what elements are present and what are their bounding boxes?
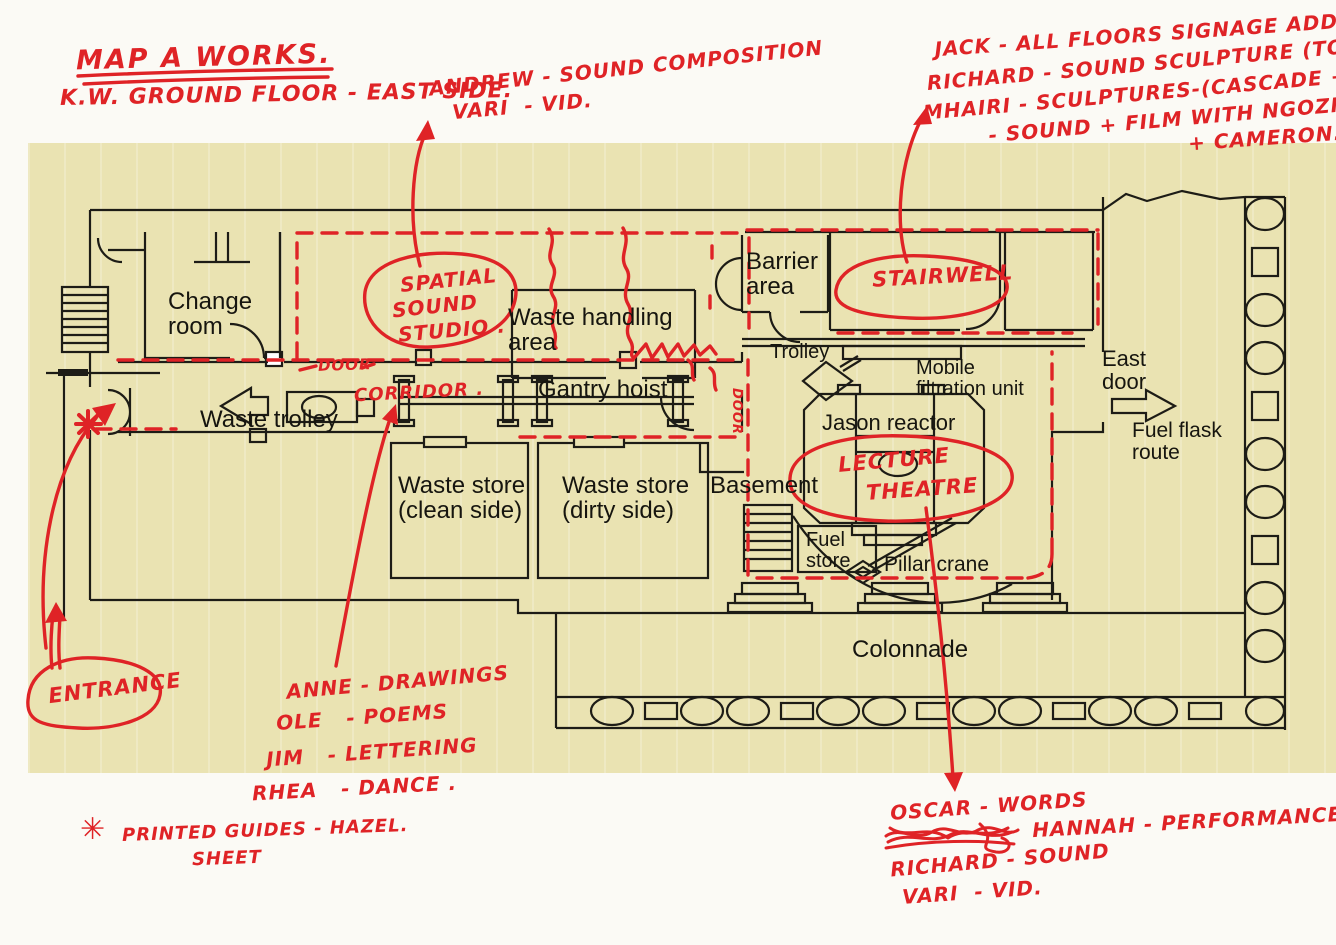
east-door-arrow	[1112, 390, 1175, 421]
note-sheet: SHEET	[192, 847, 263, 870]
room-label-waste-trolley: Waste trolley	[200, 408, 338, 433]
room-label-mobile-filtration: Mobile filtration unit	[916, 358, 1024, 400]
room-label-fuel-flask-route: Fuel flask route	[1132, 420, 1222, 464]
room-label-waste-store-clean: Waste store (clean side)	[398, 474, 525, 524]
ne-room-walls	[1005, 232, 1093, 330]
colonnade-columns-south	[591, 697, 1284, 725]
scanned-annotated-floor-plan: Change room Waste handling area Barrier …	[0, 0, 1336, 945]
east-wall	[1052, 197, 1103, 600]
label-door: DOOR	[318, 355, 372, 375]
room-label-change-room: Change room	[168, 290, 252, 340]
change-room-partition	[194, 232, 250, 262]
small-squiggles	[688, 360, 716, 390]
room-label-fuel-store: Fuel store	[806, 530, 850, 572]
room-label-waste-store-dirty: Waste store (dirty side)	[562, 474, 689, 524]
label-door-vertical: DOOR	[729, 388, 744, 435]
asterisk-footnote-icon: ✳	[80, 812, 106, 847]
room-label-east-door: East door	[1102, 348, 1146, 394]
door-post-2	[416, 350, 431, 365]
store-door-post	[424, 437, 466, 447]
colonnade-columns-east	[1246, 198, 1284, 662]
room-label-basement: Basement	[710, 474, 818, 499]
colonnade-band	[556, 697, 1285, 728]
jack-arrow	[900, 106, 932, 262]
asterisk-mark	[76, 411, 101, 437]
room-label-waste-handling: Waste handling area	[508, 306, 673, 356]
basement-wall	[700, 443, 744, 472]
basement-stairs-hatch	[744, 514, 792, 559]
jagged-edge	[1103, 191, 1245, 210]
wall-hatch-block	[58, 369, 88, 376]
room-label-jason-reactor: Jason reactor	[822, 412, 955, 435]
anne-arrow	[336, 404, 398, 666]
stairs-hatch	[62, 295, 108, 343]
barrier-double-door	[716, 258, 742, 310]
room-label-colonnade: Colonnade	[852, 638, 968, 663]
room-label-gantry-hoist: Gantry hoist	[538, 378, 667, 403]
andrew-arrow	[413, 120, 435, 266]
south-wall	[90, 600, 1245, 728]
room-label-trolley: Trolley	[770, 342, 829, 363]
room-label-barrier-area: Barrier area	[746, 250, 818, 300]
room-label-pillar-crane: Pillar crane	[884, 554, 989, 576]
